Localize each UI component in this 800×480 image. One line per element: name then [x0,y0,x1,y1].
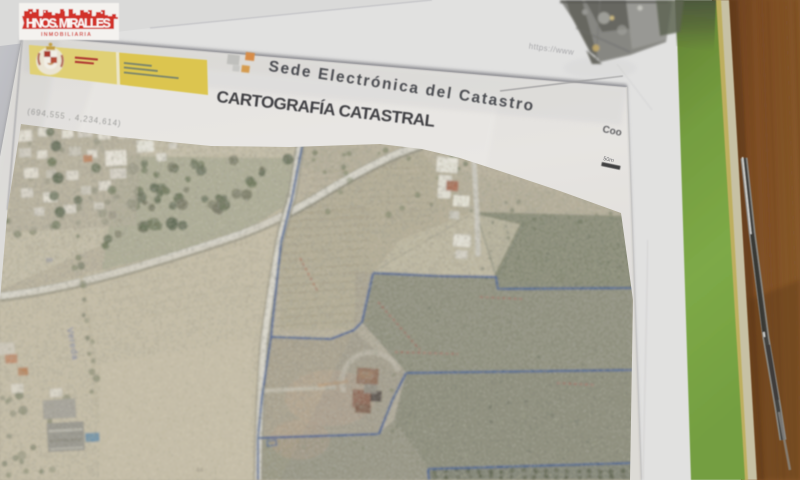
svg-text:INMOBILIARIA: INMOBILIARIA [41,32,93,38]
svg-text:HNOS. MIRALLES: HNOS. MIRALLES [26,17,111,31]
